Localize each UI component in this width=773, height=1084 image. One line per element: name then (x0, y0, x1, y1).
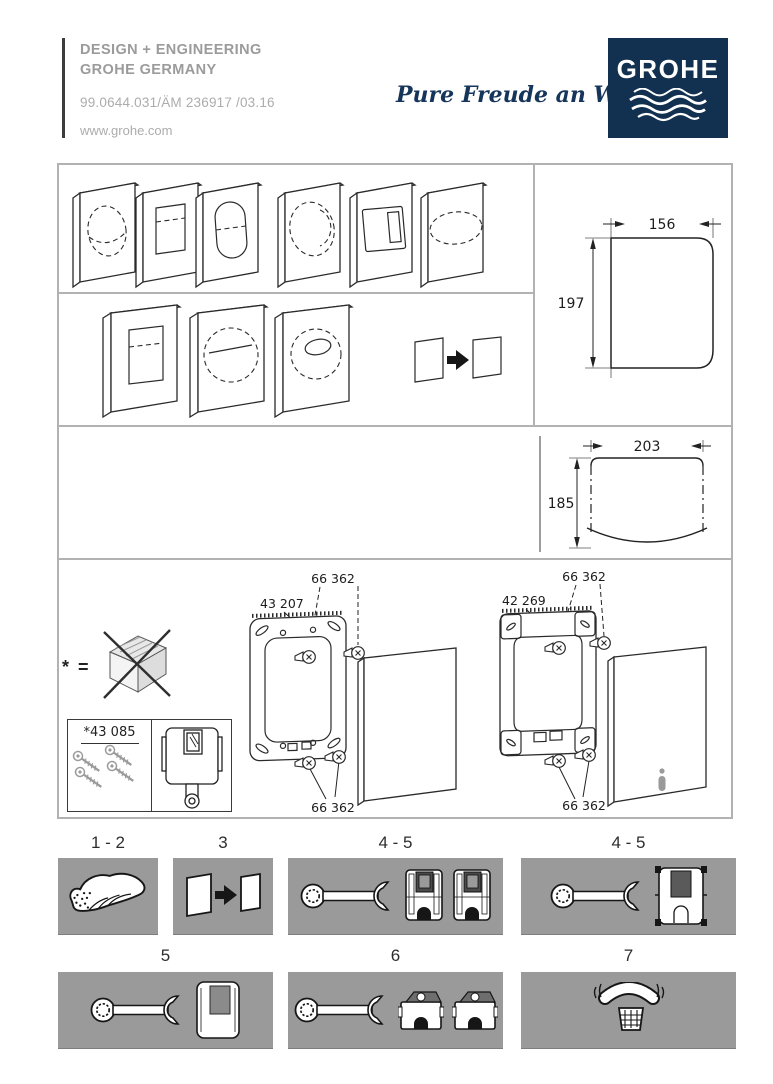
grohe-logo: GROHE (608, 38, 728, 138)
dim-height-label: 197 (558, 296, 585, 312)
divider-v2 (539, 436, 541, 552)
exploded-view-left: 43 207 66 362 66 362 (238, 565, 473, 817)
mounting-frame-icon (654, 865, 708, 927)
flush-plate-icon (136, 183, 201, 287)
grohe-waves-icon (624, 88, 712, 122)
cistern-icon (404, 867, 444, 925)
screws-icon (70, 744, 150, 796)
flush-plate-icon (421, 183, 486, 287)
part-number-frame: 43 207 (260, 596, 304, 611)
part-number-screws-top: 66 362 (562, 569, 606, 584)
step-label-1-2: 1 - 2 (58, 833, 158, 853)
flush-plate-icon (275, 305, 352, 417)
plate-swap-icon (415, 337, 501, 382)
step-label-4-5b: 4 - 5 (521, 833, 736, 853)
exploded-view-right: 42 269 66 362 66 362 (478, 565, 730, 817)
step-panel-4-5b (521, 858, 736, 935)
header-text-block: DESIGN + ENGINEERING GROHE GERMANY (80, 40, 262, 80)
cistern-top-icon (452, 988, 498, 1032)
flush-plate-icon (103, 305, 180, 417)
grohe-logo-text: GROHE (617, 54, 720, 85)
flush-plate-variants-row1 (62, 172, 532, 294)
flush-plate-icon (278, 183, 343, 287)
note-symbol: * = (62, 657, 91, 678)
website-url: www.grohe.com (80, 123, 172, 138)
mounting-frame-drawing (500, 608, 596, 756)
divider-h2 (58, 425, 732, 427)
flush-plate-icon (73, 183, 138, 287)
dimension-drawing-large: 203 185 (545, 428, 730, 558)
concealed-cistern-icon (154, 723, 230, 809)
step-label-6: 6 (288, 946, 503, 966)
divider-v1 (533, 164, 535, 425)
part-number-screws-top: 66 362 (311, 571, 355, 586)
document-number: 99.0644.031/ÄM 236917 /03.16 (80, 95, 275, 110)
cistern-top-icon (398, 988, 444, 1032)
crossed-out-package-icon (98, 612, 176, 704)
part-number-frame: 42 269 (502, 593, 546, 608)
dim-width-label: 203 (634, 439, 661, 455)
blank-plate-drawing (358, 648, 456, 805)
parts-kit-box: *43 085 (67, 719, 232, 812)
step-panel-4-5 (288, 858, 503, 935)
wrench-icon (550, 881, 646, 911)
cistern-icon (452, 867, 492, 925)
step-label-5: 5 (58, 946, 273, 966)
flush-plate-icon (196, 183, 261, 287)
wrench-icon (294, 995, 390, 1025)
step-panel-6 (288, 972, 503, 1049)
parts-kit-label: *43 085 (81, 725, 139, 744)
step-label-4-5: 4 - 5 (288, 833, 503, 853)
screw-icon (344, 647, 364, 660)
step-panel-5 (58, 972, 273, 1049)
screw-icon (545, 755, 565, 768)
flush-plate-variants-row2 (95, 298, 505, 424)
step-panel-1-2 (58, 858, 158, 935)
parts-kit-cistern-cell (152, 720, 231, 811)
part-number-screws-bottom: 66 362 (562, 798, 606, 813)
button-plate-drawing (608, 647, 706, 806)
design-line-2: GROHE GERMANY (80, 60, 262, 80)
flush-plate-icon (190, 305, 267, 417)
flush-plate-icon (194, 980, 242, 1040)
flush-plate-icon (350, 183, 415, 287)
header-rule (62, 38, 65, 138)
service-phone-icon (593, 982, 665, 1038)
step-panel-7 (521, 972, 736, 1049)
instruction-page: DESIGN + ENGINEERING GROHE GERMANY 99.06… (0, 0, 773, 1084)
dim-width-label: 156 (649, 217, 676, 233)
hand-icon (64, 866, 152, 926)
divider-h3 (58, 558, 732, 560)
dimension-drawing-small: 156 197 (545, 192, 730, 407)
parts-kit-screws-cell: *43 085 (68, 720, 152, 811)
dim-height-label: 185 (548, 496, 575, 512)
part-number-screws-bottom: 66 362 (311, 800, 355, 815)
wrench-icon (90, 995, 186, 1025)
mounting-frame-drawing (250, 613, 346, 761)
step-label-3: 3 (173, 833, 273, 853)
step-panel-3 (173, 858, 273, 935)
step-label-7: 7 (521, 946, 736, 966)
plate-swap-icon (183, 870, 263, 922)
design-line-1: DESIGN + ENGINEERING (80, 40, 262, 60)
wrench-icon (300, 881, 396, 911)
